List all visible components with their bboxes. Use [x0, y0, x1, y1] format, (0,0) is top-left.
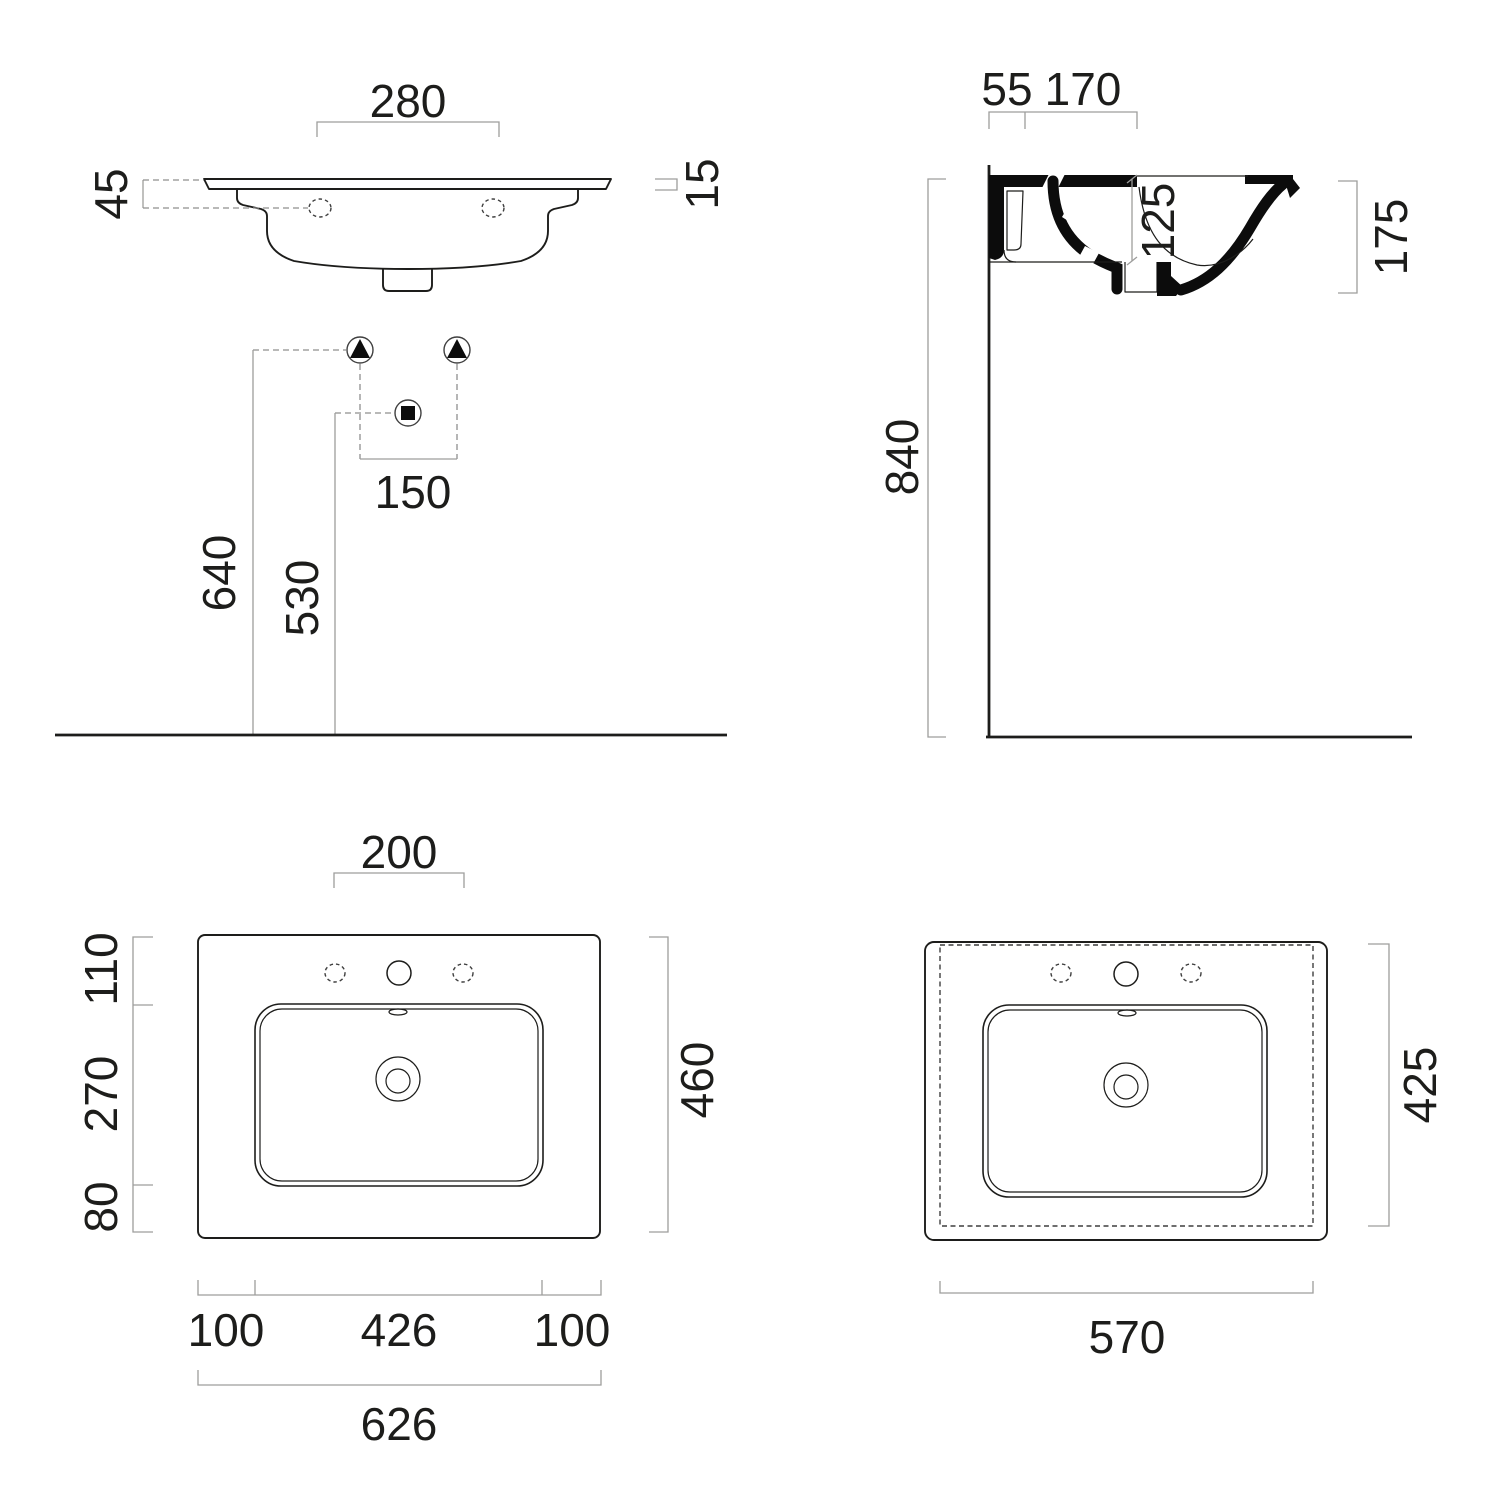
dim-label-45: 45: [85, 168, 137, 219]
section-front-rim: [1245, 175, 1293, 184]
section-wall-flange: [989, 187, 1004, 260]
fixing-symbol-triangle-left-icon: [350, 339, 370, 358]
section-fixing-hole: [1007, 191, 1023, 250]
dim-bracket-100-426-100: [198, 1280, 601, 1295]
dim-bracket-840: [928, 179, 946, 737]
dim-label-626: 626: [361, 1398, 438, 1450]
dim-label-170: 170: [1045, 63, 1122, 115]
fixing-symbol-triangle-right-icon: [447, 339, 467, 358]
dim-label-15: 15: [676, 158, 728, 209]
dim-label-150: 150: [375, 466, 452, 518]
top-plan-view: 200 110 270 80 460 100 426 100 626: [75, 826, 723, 1450]
dim-label-270: 270: [75, 1056, 127, 1133]
section-drain-box: [1125, 262, 1157, 292]
dim-label-460: 460: [671, 1042, 723, 1119]
section-flange-foot: [1004, 250, 1016, 262]
dim-label-175: 175: [1365, 199, 1417, 276]
dim-label-125: 125: [1132, 183, 1184, 260]
washbasin-drawing-svg: 280 45 15 640 530 150: [0, 0, 1500, 1500]
technical-drawing-sheet: 280 45 15 640 530 150: [0, 0, 1500, 1500]
dim-bracket-626: [198, 1370, 601, 1385]
side-section-view: 55 170 125 175 840: [876, 63, 1417, 737]
dim-label-55: 55: [981, 63, 1032, 115]
dim-label-100-left: 100: [188, 1304, 265, 1356]
dim-label-80: 80: [75, 1181, 127, 1232]
dim-label-840: 840: [876, 419, 928, 496]
dim-label-570: 570: [1089, 1311, 1166, 1363]
dim-label-530: 530: [276, 560, 328, 637]
dim-label-200: 200: [361, 826, 438, 878]
dim-label-280: 280: [370, 75, 447, 127]
section-bowl-front-wall: [1181, 184, 1283, 290]
dim-bracket-425: [1368, 944, 1389, 1226]
front-rim-profile: [204, 179, 611, 189]
dim-bracket-15: [655, 179, 677, 190]
underside-view: 425 570: [925, 942, 1446, 1363]
front-bowl-outline: [237, 189, 578, 269]
dim-bracket-460: [649, 937, 668, 1232]
section-bowl-back-wall: [1053, 181, 1117, 289]
dim-label-426: 426: [361, 1304, 438, 1356]
dim-label-640: 640: [193, 535, 245, 612]
front-hidden-taphole-left: [309, 199, 331, 217]
dim-label-100-right: 100: [534, 1304, 611, 1356]
drain-symbol-square-icon: [401, 406, 415, 420]
dim-label-425: 425: [1394, 1047, 1446, 1124]
front-elevation-view: 280 45 15 640 530 150: [55, 75, 728, 735]
dim-bracket-175: [1338, 181, 1357, 293]
dim-label-110: 110: [75, 932, 127, 1005]
dim-bracket-left-plan: [133, 937, 153, 1232]
front-hidden-taphole-right: [482, 199, 504, 217]
plan-outer-rect: [198, 935, 600, 1238]
dim-bracket-570: [940, 1281, 1313, 1293]
front-drain-trap: [383, 269, 432, 291]
